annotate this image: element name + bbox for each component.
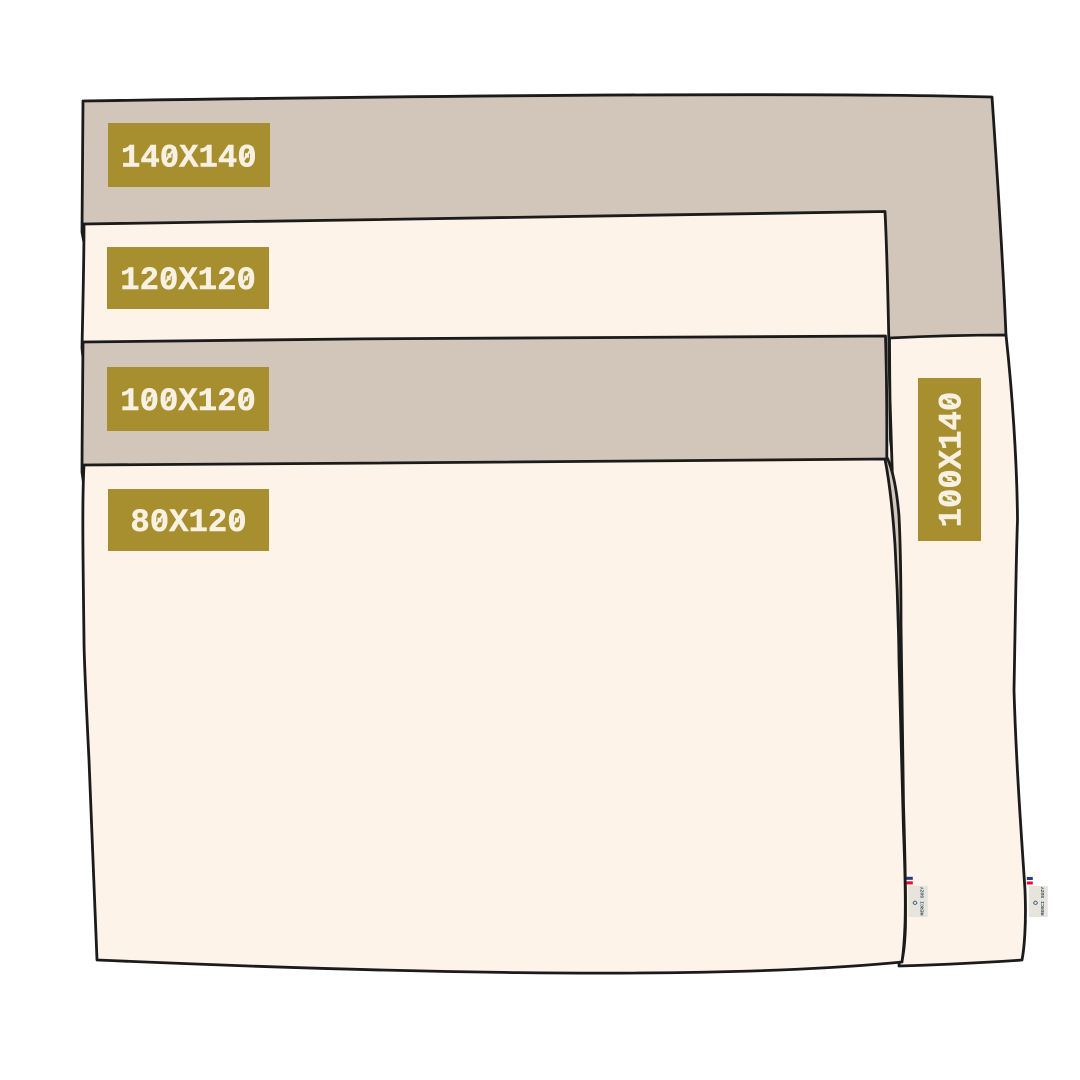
svg-text:MERCI SUZY: MERCI SUZY — [920, 887, 926, 916]
svg-text:140X140: 140X140 — [121, 139, 257, 176]
svg-text:100X120: 100X120 — [120, 383, 256, 420]
svg-text:120X120: 120X120 — [120, 262, 256, 299]
svg-text:100X140: 100X140 — [934, 392, 971, 528]
svg-text:80X120: 80X120 — [130, 504, 246, 541]
svg-text:MERCI SUZY: MERCI SUZY — [1040, 887, 1046, 916]
